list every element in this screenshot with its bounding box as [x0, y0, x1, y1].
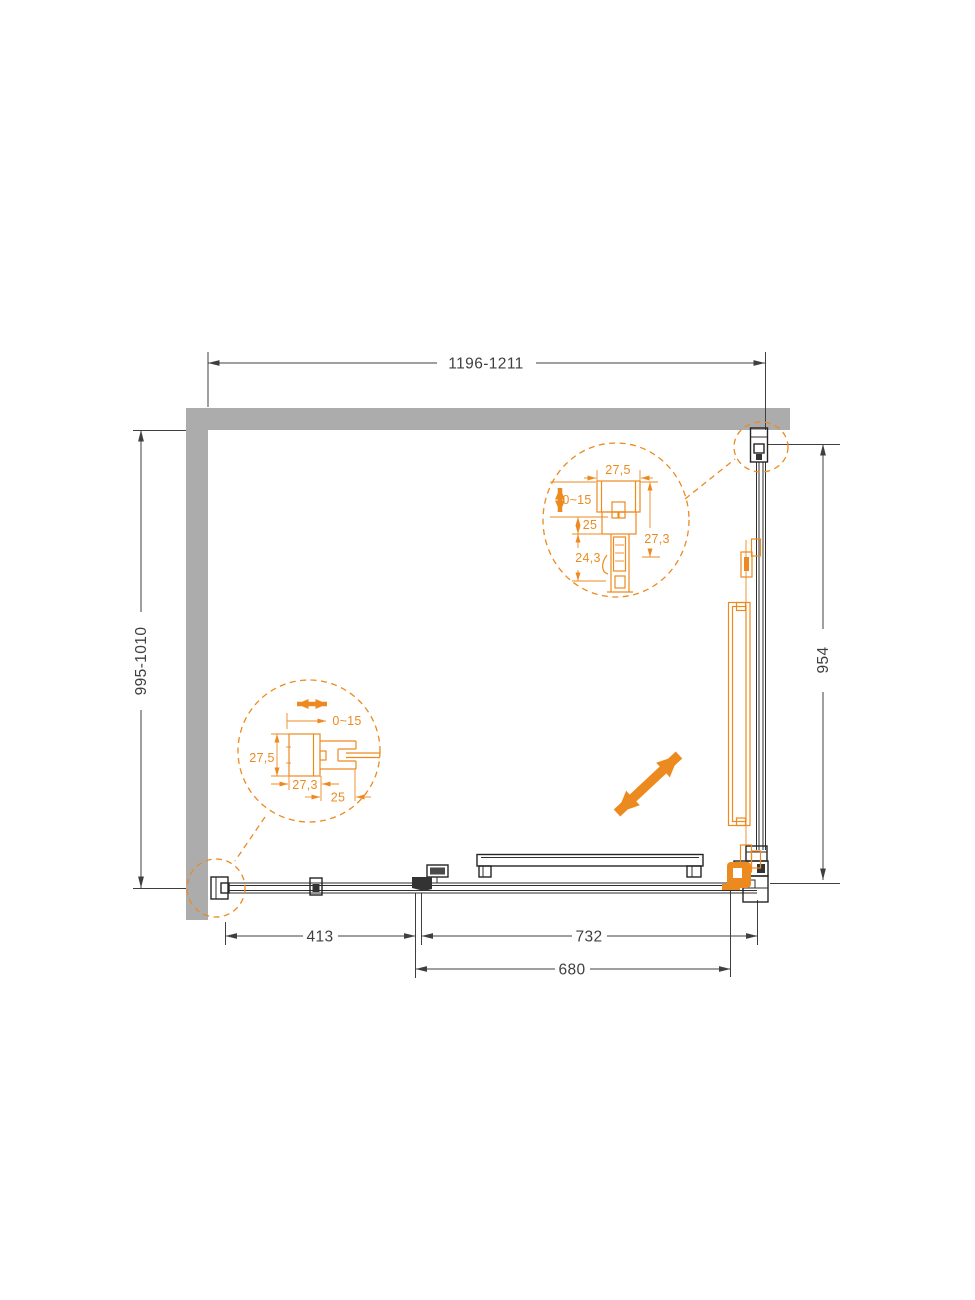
detail-side-height-label: 27,5 — [249, 751, 275, 765]
detail-top-25-label: 25 — [583, 518, 598, 532]
detail-side-adjust-label: 0~15 — [332, 714, 361, 728]
walls — [186, 408, 790, 920]
dimension-side-height: 954 — [768, 444, 840, 884]
dim-top-width-label: 1196-1211 — [448, 356, 523, 373]
dimension-left-height: 995-1010 — [133, 430, 186, 889]
detail-side-profile: 0~15 27,5 27,3 25 — [238, 680, 380, 822]
right-side-assembly — [751, 428, 768, 850]
wall-profile-top-right — [751, 428, 768, 462]
detail-top-profile: 27,5 0~15 25 24,3 27,3 — [543, 443, 689, 597]
sliding-door-side — [722, 539, 761, 890]
shower-enclosure-technical-drawing: 1196-1211 995-1010 954 413 732 680 — [0, 0, 975, 1300]
detail-top-273-label: 27,3 — [644, 532, 670, 546]
dim-fixed-panel-label: 413 — [306, 929, 333, 946]
dim-door-opening-label: 732 — [575, 929, 602, 946]
sliding-door-bottom — [477, 855, 703, 878]
detail-links — [187, 422, 788, 917]
bottom-side-assembly — [211, 846, 768, 902]
dim-side-height-label: 954 — [815, 646, 832, 673]
detail-top-width-label: 27,5 — [605, 463, 631, 477]
detail-top-adjust-label: 0~15 — [562, 493, 591, 507]
detail-top-243-label: 24,3 — [575, 551, 601, 565]
detail-side-273-label: 27,3 — [292, 778, 318, 792]
door-roller-bracket — [412, 865, 448, 891]
dim-door-glass-label: 680 — [558, 962, 585, 979]
opening-direction-arrow — [617, 755, 679, 813]
dimensions-bottom: 413 732 680 — [226, 880, 758, 979]
detail-side-25-label: 25 — [331, 791, 346, 805]
left-wall — [186, 408, 208, 920]
door-hanger-top — [741, 539, 761, 577]
dim-left-height-label: 995-1010 — [133, 627, 150, 696]
wall-profile-bottom — [211, 877, 229, 899]
top-wall — [186, 408, 790, 430]
panel-clamp — [310, 878, 322, 895]
